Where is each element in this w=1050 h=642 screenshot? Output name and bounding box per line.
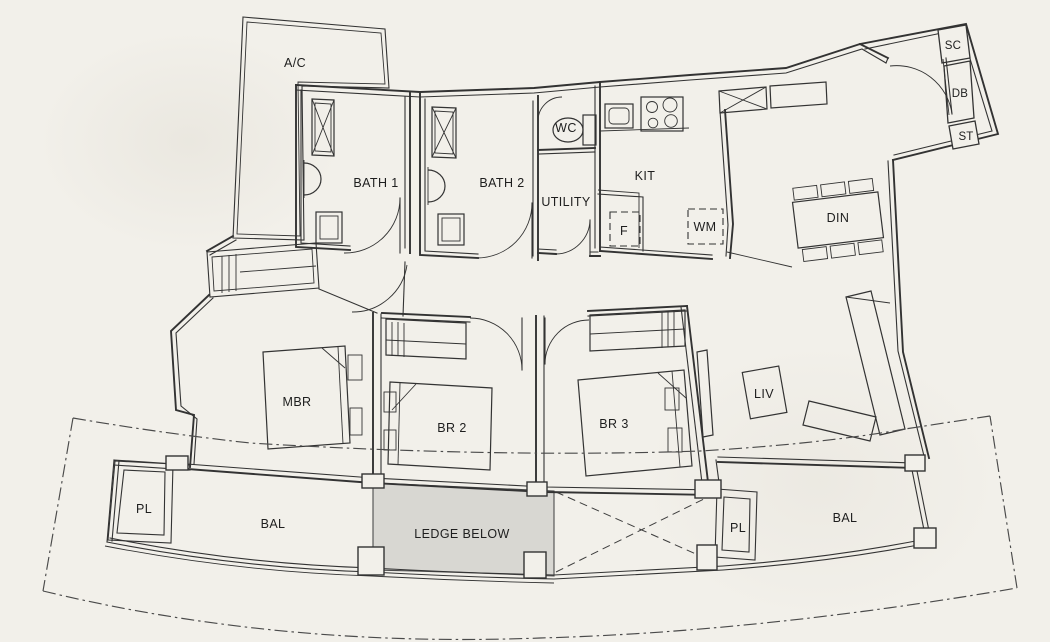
br2-wardrobe — [386, 319, 466, 359]
label-bal-right: BAL — [833, 511, 858, 525]
sofa — [803, 291, 905, 441]
label-bath2: BATH 2 — [479, 176, 524, 190]
label-wc: WC — [555, 121, 577, 135]
bedroom3 — [578, 306, 708, 483]
label-mbr: MBR — [283, 395, 312, 409]
fridge-alcove — [598, 190, 643, 251]
label-fridge: F — [620, 224, 628, 238]
label-bath1: BATH 1 — [353, 176, 398, 190]
label-bal-left: BAL — [261, 517, 286, 531]
br3-door — [545, 318, 589, 364]
bath2-basin — [428, 170, 445, 202]
label-pl-left: PL — [136, 502, 152, 516]
br2-door — [470, 318, 522, 370]
kitchen-hob — [641, 97, 683, 131]
bath1-shaft-x — [312, 99, 334, 156]
bath1 — [296, 85, 410, 253]
master-bedroom — [263, 313, 381, 484]
trellis-ledge — [207, 243, 319, 297]
label-sc: SC — [945, 40, 961, 52]
mbr-door — [352, 262, 407, 316]
label-db: DB — [952, 88, 969, 100]
bath2-door — [477, 203, 532, 258]
label-liv: LIV — [754, 387, 774, 401]
bath2-shaft-x — [432, 107, 456, 158]
dining-chair — [848, 179, 873, 194]
bath1-basin — [304, 163, 321, 195]
bedroom2 — [382, 313, 544, 490]
bath2-toilet — [438, 214, 464, 245]
label-br3: BR 3 — [599, 417, 628, 431]
kitchen — [598, 82, 827, 267]
br3-wardrobe — [590, 310, 685, 351]
bath1-door — [344, 198, 400, 253]
label-wm: WM — [693, 220, 716, 234]
utility-room — [538, 82, 600, 256]
kitchen-sink — [605, 104, 633, 128]
void-x-area — [556, 492, 714, 572]
mbr-bed — [263, 346, 362, 449]
bath1-toilet — [316, 212, 342, 243]
entry-door — [890, 58, 952, 115]
floor-plan-drawing: A/C BATH 1 BATH 2 WC UTILITY KIT F WM SC… — [0, 0, 1050, 642]
foyer-cabinet — [770, 82, 827, 108]
dining-chair — [830, 243, 855, 258]
label-st: ST — [958, 131, 973, 143]
tv-console — [697, 350, 713, 437]
dining-chair — [802, 247, 827, 262]
label-br2: BR 2 — [437, 421, 466, 435]
br3-bed — [578, 370, 692, 476]
label-pl-right: PL — [730, 521, 746, 535]
label-din: DIN — [827, 211, 850, 225]
floor-plan: A/C BATH 1 BATH 2 WC UTILITY KIT F WM SC… — [0, 0, 1050, 642]
wc-door — [538, 97, 562, 121]
label-ledge-below: LEDGE BELOW — [414, 527, 509, 541]
living — [697, 291, 905, 441]
utility-door — [556, 220, 590, 255]
label-utility: UTILITY — [541, 195, 591, 209]
dining-chair — [793, 185, 818, 200]
label-ac: A/C — [284, 56, 306, 70]
label-kit: KIT — [635, 169, 656, 183]
balcony-band — [105, 460, 931, 583]
dining-chair — [858, 240, 883, 255]
ac-ledge — [233, 17, 389, 240]
dining-chair — [821, 182, 846, 197]
foyer-shaft-x — [719, 87, 767, 113]
